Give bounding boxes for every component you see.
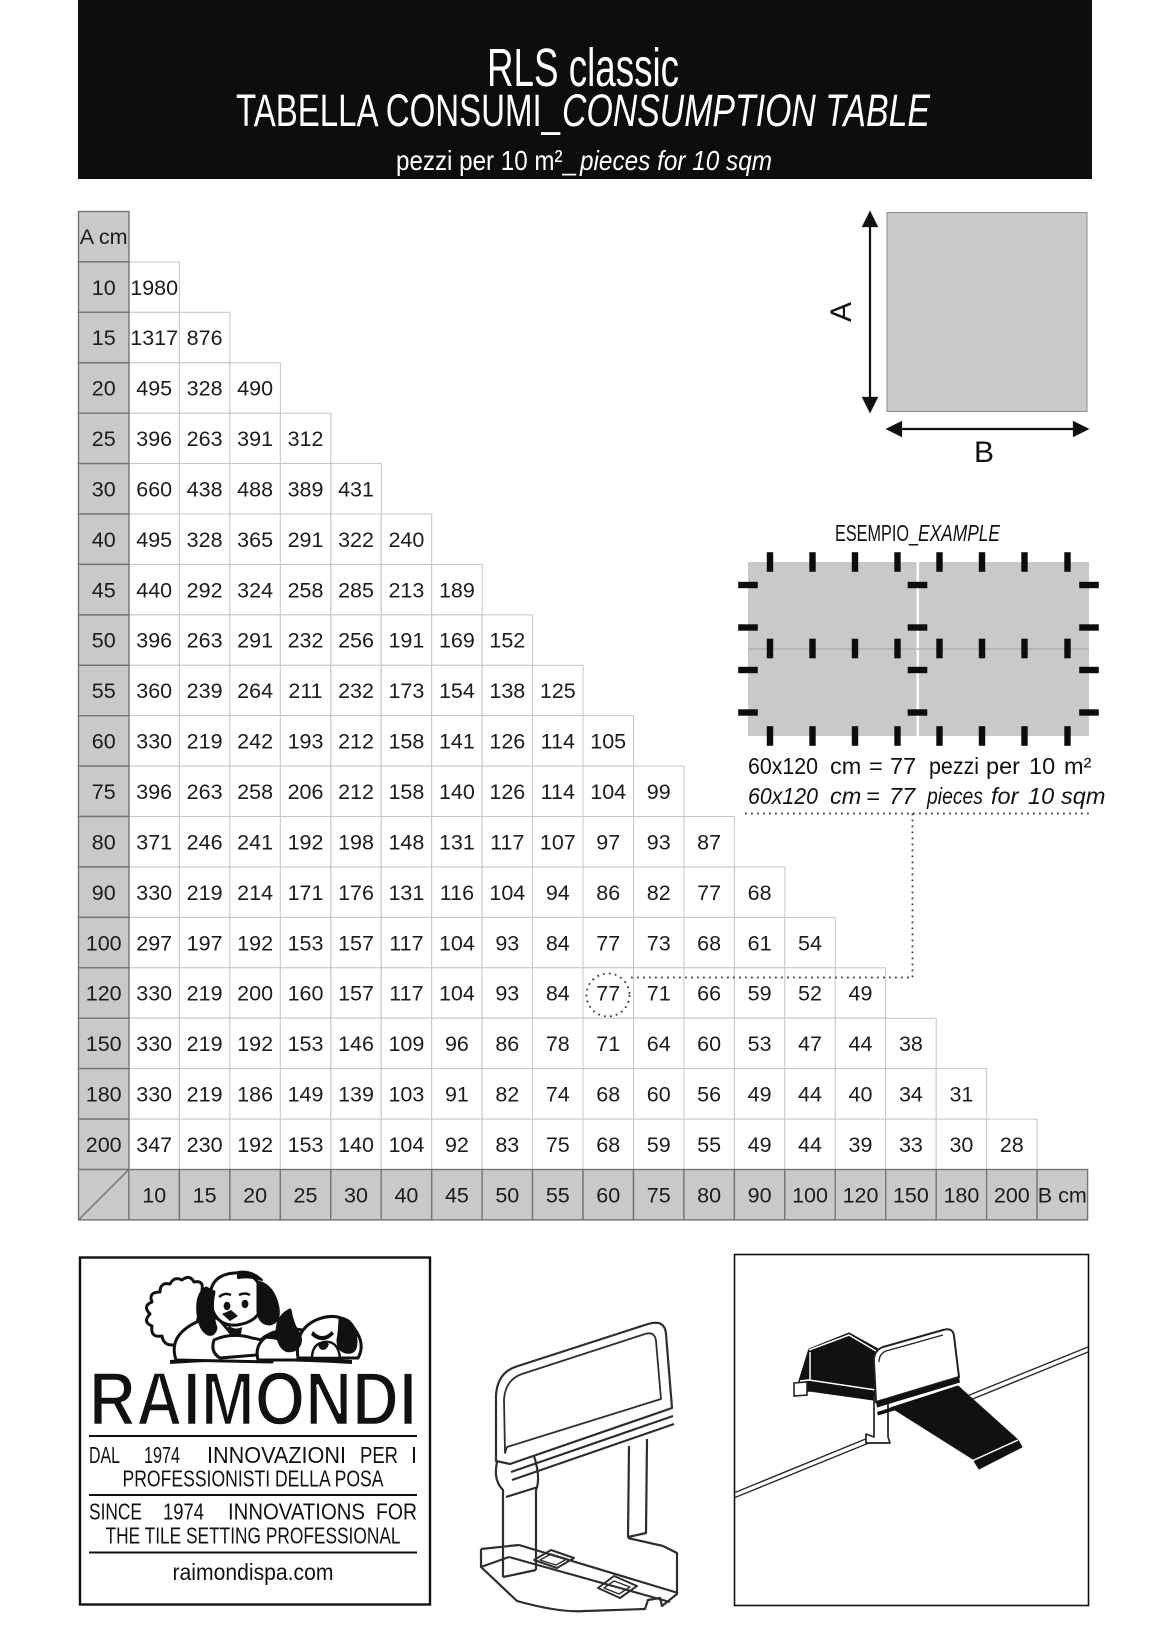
svg-text:SINCE: SINCE: [89, 1499, 142, 1525]
svg-text:219: 219: [187, 982, 223, 1006]
svg-text:ESEMPIO_: ESEMPIO_: [835, 520, 919, 546]
svg-text:328: 328: [187, 528, 223, 552]
svg-text:49: 49: [748, 1133, 772, 1157]
svg-text:60x120: 60x120: [748, 783, 818, 809]
svg-text:495: 495: [136, 528, 172, 552]
svg-text:117: 117: [389, 982, 423, 1006]
svg-text:241: 241: [237, 830, 273, 854]
svg-text:1980: 1980: [130, 276, 178, 300]
svg-text:153: 153: [288, 931, 324, 955]
svg-text:330: 330: [136, 730, 172, 754]
svg-text:114: 114: [541, 730, 575, 754]
svg-text:212: 212: [338, 730, 374, 754]
svg-text:raimondispa.com: raimondispa.com: [173, 1559, 334, 1585]
svg-text:pezzi: pezzi: [929, 753, 979, 779]
svg-text:214: 214: [237, 881, 273, 905]
svg-text:54: 54: [798, 931, 822, 955]
svg-text:292: 292: [187, 578, 223, 602]
svg-text:192: 192: [237, 1133, 273, 1157]
svg-text:140: 140: [338, 1133, 374, 1157]
svg-text:44: 44: [798, 1083, 822, 1107]
svg-text:55: 55: [697, 1133, 721, 1157]
svg-text:10: 10: [142, 1183, 166, 1207]
svg-text:230: 230: [187, 1133, 223, 1157]
svg-text:INNOVAZIONI: INNOVAZIONI: [207, 1442, 346, 1468]
svg-text:pezzi per 10 m²_: pezzi per 10 m²_: [396, 145, 576, 176]
svg-text:126: 126: [489, 730, 525, 754]
svg-text:per: per: [986, 753, 1020, 779]
svg-text:219: 219: [187, 881, 223, 905]
svg-text:50: 50: [495, 1183, 519, 1207]
svg-text:157: 157: [338, 931, 374, 955]
svg-text:246: 246: [187, 830, 223, 854]
svg-text:192: 192: [237, 931, 273, 955]
svg-text:198: 198: [338, 830, 374, 854]
svg-text:391: 391: [237, 427, 273, 451]
svg-text:=: =: [869, 753, 883, 779]
svg-text:61: 61: [748, 931, 772, 955]
svg-text:cm: cm: [830, 783, 861, 809]
svg-text:105: 105: [590, 730, 626, 754]
svg-text:sqm: sqm: [1061, 783, 1105, 809]
svg-text:114: 114: [541, 780, 575, 804]
svg-text:219: 219: [187, 1083, 223, 1107]
svg-text:291: 291: [288, 528, 324, 552]
svg-text:264: 264: [237, 679, 273, 703]
svg-text:68: 68: [748, 881, 772, 905]
svg-text:153: 153: [288, 1032, 324, 1056]
svg-text:330: 330: [136, 881, 172, 905]
svg-text:86: 86: [596, 881, 620, 905]
svg-text:186: 186: [237, 1083, 273, 1107]
svg-text:389: 389: [288, 478, 324, 502]
svg-text:74: 74: [546, 1083, 570, 1107]
svg-text:100: 100: [86, 931, 122, 955]
svg-text:157: 157: [338, 982, 374, 1006]
svg-text:138: 138: [489, 679, 525, 703]
svg-text:84: 84: [546, 931, 570, 955]
svg-text:171: 171: [288, 881, 324, 905]
svg-text:77: 77: [596, 982, 620, 1006]
svg-text:285: 285: [338, 578, 374, 602]
svg-text:117: 117: [389, 931, 423, 955]
svg-text:93: 93: [495, 931, 519, 955]
svg-text:360: 360: [136, 679, 172, 703]
svg-text:94: 94: [546, 881, 570, 905]
svg-text:192: 192: [237, 1032, 273, 1056]
svg-text:56: 56: [697, 1083, 721, 1107]
svg-text:71: 71: [647, 982, 671, 1006]
svg-text:149: 149: [288, 1083, 324, 1107]
svg-text:86: 86: [495, 1032, 519, 1056]
svg-text:158: 158: [388, 780, 424, 804]
svg-text:200: 200: [86, 1133, 122, 1157]
svg-text:371: 371: [136, 830, 172, 854]
svg-text:104: 104: [489, 881, 525, 905]
svg-text:84: 84: [546, 982, 570, 1006]
svg-text:150: 150: [86, 1032, 122, 1056]
svg-text:1974: 1974: [163, 1499, 204, 1525]
svg-text:73: 73: [647, 931, 671, 955]
svg-text:347: 347: [136, 1133, 172, 1157]
svg-text:490: 490: [237, 377, 273, 401]
svg-text:131: 131: [439, 830, 475, 854]
svg-text:126: 126: [489, 780, 525, 804]
svg-text:256: 256: [338, 629, 374, 653]
svg-text:34: 34: [899, 1083, 923, 1107]
svg-text:211: 211: [288, 679, 322, 703]
svg-text:68: 68: [596, 1133, 620, 1157]
svg-text:50: 50: [92, 629, 116, 653]
svg-text:1317: 1317: [130, 326, 178, 350]
svg-text:173: 173: [388, 679, 424, 703]
svg-text:47: 47: [798, 1032, 822, 1056]
svg-text:40: 40: [394, 1183, 418, 1207]
svg-text:pieces for 10 sqm: pieces for 10 sqm: [579, 145, 772, 176]
svg-text:DAL: DAL: [89, 1442, 120, 1468]
svg-text:68: 68: [697, 931, 721, 955]
svg-text:82: 82: [647, 881, 671, 905]
svg-text:90: 90: [92, 881, 116, 905]
svg-text:30: 30: [949, 1133, 973, 1157]
svg-text:80: 80: [697, 1183, 721, 1207]
svg-text:297: 297: [136, 931, 172, 955]
svg-text:49: 49: [748, 1083, 772, 1107]
svg-text:158: 158: [388, 730, 424, 754]
svg-text:104: 104: [439, 931, 475, 955]
svg-text:44: 44: [849, 1032, 873, 1056]
svg-text:146: 146: [338, 1032, 374, 1056]
svg-text:49: 49: [849, 982, 873, 1006]
svg-text:160: 160: [288, 982, 324, 1006]
svg-text:RAIMONDI: RAIMONDI: [89, 1357, 417, 1442]
svg-text:440: 440: [136, 578, 172, 602]
svg-text:60: 60: [647, 1083, 671, 1107]
svg-text:68: 68: [596, 1083, 620, 1107]
svg-text:365: 365: [237, 528, 273, 552]
svg-text:pieces: pieces: [926, 783, 983, 809]
svg-text:191: 191: [388, 629, 424, 653]
svg-text:75: 75: [546, 1133, 570, 1157]
svg-text:60: 60: [92, 730, 116, 754]
svg-text:PER: PER: [360, 1442, 398, 1468]
svg-text:396: 396: [136, 629, 172, 653]
svg-text:263: 263: [187, 780, 223, 804]
svg-text:180: 180: [86, 1083, 122, 1107]
svg-text:153: 153: [288, 1133, 324, 1157]
svg-text:330: 330: [136, 982, 172, 1006]
svg-text:B cm: B cm: [1038, 1183, 1087, 1207]
svg-text:33: 33: [899, 1133, 923, 1157]
svg-text:104: 104: [388, 1133, 424, 1157]
svg-text:INNOVATIONS: INNOVATIONS: [228, 1499, 365, 1525]
svg-text:25: 25: [294, 1183, 318, 1207]
svg-text:87: 87: [697, 830, 721, 854]
svg-text:53: 53: [748, 1032, 772, 1056]
svg-text:A: A: [825, 302, 858, 322]
svg-text:71: 71: [596, 1032, 620, 1056]
svg-text:A cm: A cm: [80, 225, 128, 249]
svg-text:m²: m²: [1064, 753, 1092, 779]
svg-text:15: 15: [92, 326, 116, 350]
svg-text:B: B: [974, 436, 994, 469]
svg-text:330: 330: [136, 1083, 172, 1107]
svg-text:200: 200: [994, 1183, 1030, 1207]
svg-text:30: 30: [92, 478, 116, 502]
svg-text:103: 103: [388, 1083, 424, 1107]
svg-text:78: 78: [546, 1032, 570, 1056]
svg-text:242: 242: [237, 730, 273, 754]
svg-text:1974: 1974: [144, 1442, 180, 1468]
svg-text:219: 219: [187, 1032, 223, 1056]
svg-text:240: 240: [388, 528, 424, 552]
svg-text:116: 116: [440, 881, 474, 905]
svg-text:93: 93: [495, 982, 519, 1006]
svg-text:212: 212: [338, 780, 374, 804]
svg-text:55: 55: [92, 679, 116, 703]
svg-text:96: 96: [445, 1032, 469, 1056]
svg-text:109: 109: [388, 1032, 424, 1056]
svg-text:25: 25: [92, 427, 116, 451]
svg-text:232: 232: [338, 679, 374, 703]
svg-text:104: 104: [439, 982, 475, 1006]
svg-text:189: 189: [439, 578, 475, 602]
svg-text:91: 91: [445, 1083, 469, 1107]
svg-text:66: 66: [697, 982, 721, 1006]
svg-text:99: 99: [647, 780, 671, 804]
svg-text:55: 55: [546, 1183, 570, 1207]
svg-text:291: 291: [237, 629, 273, 653]
svg-text:45: 45: [92, 578, 116, 602]
svg-text:322: 322: [338, 528, 374, 552]
svg-text:75: 75: [92, 780, 116, 804]
svg-text:100: 100: [792, 1183, 828, 1207]
svg-text:THE TILE SETTING PROFESSIONAL: THE TILE SETTING PROFESSIONAL: [106, 1523, 401, 1549]
svg-text:40: 40: [92, 528, 116, 552]
svg-text:for: for: [991, 783, 1020, 809]
svg-text:131: 131: [388, 881, 424, 905]
svg-text:197: 197: [187, 931, 223, 955]
svg-text:192: 192: [288, 830, 324, 854]
svg-text:219: 219: [187, 730, 223, 754]
svg-text:176: 176: [338, 881, 374, 905]
svg-text:148: 148: [388, 830, 424, 854]
svg-text:EXAMPLE: EXAMPLE: [918, 520, 1000, 546]
svg-text:141: 141: [439, 730, 475, 754]
svg-text:60x120: 60x120: [748, 753, 818, 779]
svg-text:104: 104: [590, 780, 626, 804]
svg-text:30: 30: [344, 1183, 368, 1207]
svg-text:80: 80: [92, 830, 116, 854]
svg-text:139: 139: [338, 1083, 374, 1107]
svg-text:330: 330: [136, 1032, 172, 1056]
svg-text:328: 328: [187, 377, 223, 401]
svg-text:150: 150: [893, 1183, 929, 1207]
svg-text:213: 213: [388, 578, 424, 602]
svg-text:90: 90: [748, 1183, 772, 1207]
svg-text:97: 97: [596, 830, 620, 854]
svg-text:120: 120: [843, 1183, 879, 1207]
svg-text:77: 77: [889, 783, 916, 809]
svg-text:52: 52: [798, 982, 822, 1006]
svg-text:258: 258: [288, 578, 324, 602]
svg-text:107: 107: [540, 830, 576, 854]
svg-text:28: 28: [1000, 1133, 1024, 1157]
svg-text:396: 396: [136, 427, 172, 451]
svg-text:77: 77: [890, 753, 916, 779]
svg-text:60: 60: [697, 1032, 721, 1056]
svg-text:258: 258: [237, 780, 273, 804]
svg-text:82: 82: [495, 1083, 519, 1107]
svg-text:232: 232: [288, 629, 324, 653]
svg-text:263: 263: [187, 427, 223, 451]
svg-text:59: 59: [647, 1133, 671, 1157]
svg-text:44: 44: [798, 1133, 822, 1157]
svg-text:20: 20: [243, 1183, 267, 1207]
svg-text:10: 10: [1029, 753, 1055, 779]
svg-text:152: 152: [489, 629, 525, 653]
svg-text:TABELLA CONSUMI_: TABELLA CONSUMI_: [236, 85, 561, 136]
svg-text:206: 206: [288, 780, 324, 804]
svg-text:60: 60: [596, 1183, 620, 1207]
svg-text:92: 92: [445, 1133, 469, 1157]
svg-text:154: 154: [439, 679, 475, 703]
svg-text:193: 193: [288, 730, 324, 754]
svg-text:I: I: [411, 1442, 417, 1468]
svg-text:263: 263: [187, 629, 223, 653]
svg-text:75: 75: [647, 1183, 671, 1207]
svg-text:660: 660: [136, 478, 172, 502]
svg-text:324: 324: [237, 578, 273, 602]
svg-text:169: 169: [439, 629, 475, 653]
svg-text:140: 140: [439, 780, 475, 804]
svg-text:495: 495: [136, 377, 172, 401]
svg-text:31: 31: [949, 1083, 973, 1107]
svg-text:117: 117: [490, 830, 524, 854]
svg-text:120: 120: [86, 982, 122, 1006]
svg-text:15: 15: [193, 1183, 217, 1207]
svg-text:10: 10: [1028, 783, 1054, 809]
svg-text:40: 40: [849, 1083, 873, 1107]
svg-text:77: 77: [596, 931, 620, 955]
svg-text:39: 39: [849, 1133, 873, 1157]
svg-text:64: 64: [647, 1032, 671, 1056]
svg-text:cm: cm: [830, 753, 861, 779]
svg-text:38: 38: [899, 1032, 923, 1056]
svg-text:83: 83: [495, 1133, 519, 1157]
svg-text:396: 396: [136, 780, 172, 804]
svg-text:431: 431: [338, 478, 374, 502]
svg-text:488: 488: [237, 478, 273, 502]
svg-text:PROFESSIONISTI DELLA POSA: PROFESSIONISTI DELLA POSA: [123, 1466, 384, 1492]
svg-text:10: 10: [92, 276, 116, 300]
svg-text:438: 438: [187, 478, 223, 502]
svg-text:125: 125: [540, 679, 576, 703]
svg-text:20: 20: [92, 377, 116, 401]
svg-text:200: 200: [237, 982, 273, 1006]
svg-text:77: 77: [697, 881, 721, 905]
svg-text:876: 876: [187, 326, 223, 350]
svg-text:59: 59: [748, 982, 772, 1006]
svg-text:CONSUMPTION TABLE: CONSUMPTION TABLE: [562, 85, 931, 136]
svg-text:312: 312: [288, 427, 324, 451]
svg-text:93: 93: [647, 830, 671, 854]
svg-text:FOR: FOR: [376, 1499, 417, 1525]
svg-text:=: =: [866, 783, 880, 809]
svg-text:239: 239: [187, 679, 223, 703]
svg-text:180: 180: [943, 1183, 979, 1207]
svg-text:45: 45: [445, 1183, 469, 1207]
